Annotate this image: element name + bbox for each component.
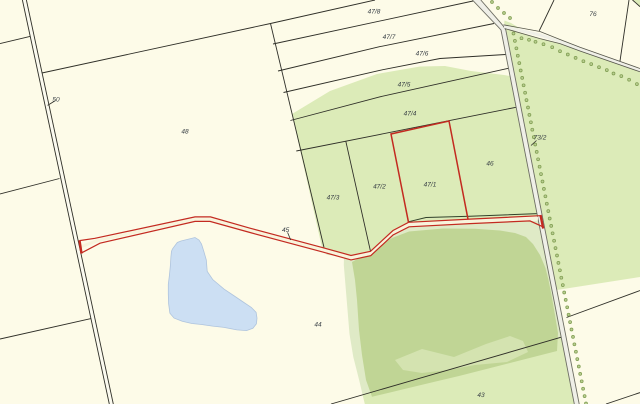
svg-text:47/7: 47/7 (383, 34, 396, 41)
svg-text:45: 45 (282, 227, 290, 234)
svg-text:47/1: 47/1 (424, 182, 437, 189)
svg-text:47/4: 47/4 (404, 111, 417, 118)
svg-text:47/6: 47/6 (416, 51, 429, 58)
svg-text:46: 46 (486, 161, 494, 168)
svg-text:73/2: 73/2 (534, 135, 547, 142)
svg-text:76: 76 (589, 11, 597, 18)
svg-text:47/8: 47/8 (368, 9, 381, 16)
svg-text:50: 50 (52, 96, 60, 103)
svg-text:47/5: 47/5 (398, 82, 411, 89)
svg-text:47/3: 47/3 (327, 195, 340, 202)
svg-text:48: 48 (181, 129, 189, 136)
svg-text:44: 44 (314, 322, 322, 329)
svg-text:43: 43 (477, 392, 485, 399)
svg-text:47/2: 47/2 (373, 183, 386, 190)
